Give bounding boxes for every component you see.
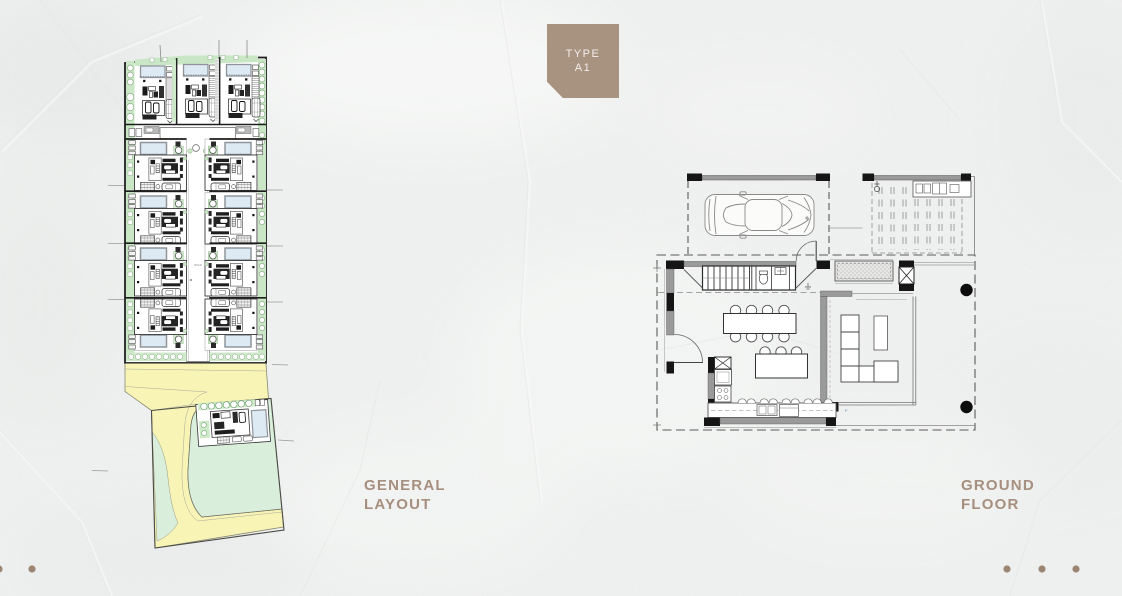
svg-text:F: F — [845, 408, 848, 413]
svg-text:ROAD: ROAD — [194, 263, 202, 267]
